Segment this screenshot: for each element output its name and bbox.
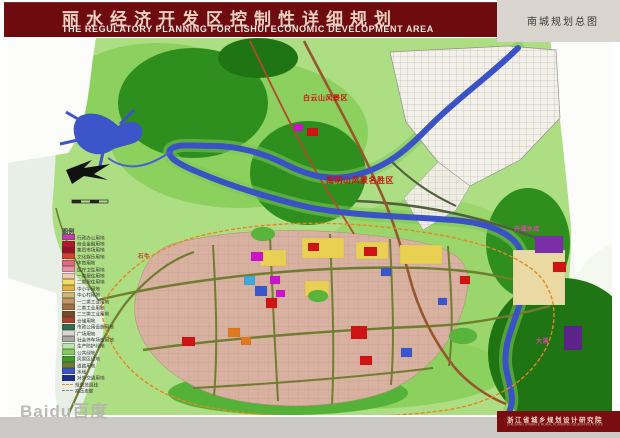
legend-swatch bbox=[62, 285, 75, 291]
map-legend: 图例 行政办公用地 商业金融用地 集贸市场用地 bbox=[62, 226, 134, 394]
map-place-label: 开潭水库 bbox=[514, 224, 540, 233]
sheet-name-label: 南城规划总图 bbox=[527, 13, 599, 28]
legend-swatch bbox=[62, 241, 75, 247]
legend-swatch bbox=[62, 253, 75, 259]
legend-swatch bbox=[62, 368, 75, 374]
map-canvas: 图例 行政办公用地 商业金融用地 集贸市场用地 bbox=[8, 38, 612, 415]
legend-swatch bbox=[62, 317, 75, 323]
baidu-watermark: Baidu百度 bbox=[20, 397, 108, 422]
map-place-label: 白云山风景区 bbox=[303, 93, 348, 103]
legend-swatch bbox=[62, 298, 75, 304]
legend-swatch bbox=[62, 330, 75, 336]
legend-item: 高压走廊 bbox=[62, 387, 134, 393]
legend-swatch bbox=[62, 390, 73, 391]
map-place-label: 石牛 bbox=[138, 252, 150, 260]
map-place-label: 大溪 bbox=[536, 336, 549, 345]
legend-swatch bbox=[62, 311, 75, 317]
legend-swatch bbox=[62, 324, 75, 330]
legend-swatch bbox=[62, 273, 75, 279]
legend-swatch bbox=[62, 375, 75, 381]
legend-title: 图例 bbox=[62, 226, 107, 231]
legend-swatch bbox=[62, 349, 75, 355]
legend-swatch bbox=[62, 279, 75, 285]
legend-item-label: 风景区绿地 bbox=[77, 355, 100, 362]
institute-banner: 浙江省城乡规划设计研究院 ZHEJIANG URBAN & RURAL PLAN… bbox=[497, 411, 620, 432]
legend-swatch bbox=[62, 304, 75, 310]
legend-swatch bbox=[62, 266, 75, 272]
legend-swatch bbox=[62, 292, 75, 298]
map-place-label: 南明山风景名胜区 bbox=[326, 175, 394, 186]
plan-title-en: THE REGULATORY PLANNING FOR LISHUI ECONO… bbox=[62, 24, 434, 34]
legend-swatch bbox=[62, 362, 75, 368]
sheet-corner: 南城规划总图 bbox=[497, 0, 620, 42]
legend-swatch bbox=[62, 343, 75, 349]
title-banner: 丽水经济开发区控制性详细规划 THE REGULATORY PLANNING F… bbox=[4, 2, 497, 37]
legend-swatch bbox=[62, 336, 75, 342]
legend-swatch bbox=[62, 384, 73, 385]
institute-name-en: ZHEJIANG URBAN & RURAL PLANNING DESIGN I… bbox=[507, 423, 603, 427]
legend-swatch bbox=[62, 356, 75, 362]
legend-swatch bbox=[62, 260, 75, 266]
legend-item-label: 高压走廊 bbox=[75, 387, 93, 394]
legend-swatch bbox=[62, 247, 75, 253]
plan-sheet: 图例 行政办公用地 商业金融用地 集贸市场用地 bbox=[0, 0, 620, 438]
